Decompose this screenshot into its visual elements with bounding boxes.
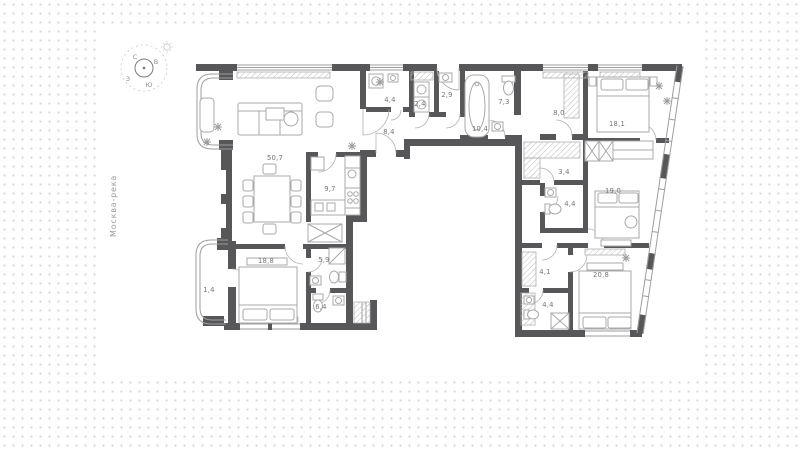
window-living-top <box>237 64 332 71</box>
window-bedroom1-top <box>598 64 642 71</box>
armchair-1 <box>316 86 333 101</box>
compass-north-label: С <box>133 53 138 61</box>
bed-bedroom4 <box>239 258 297 323</box>
side-table <box>266 108 284 120</box>
wardrobe-hatch-2 <box>524 158 540 178</box>
wardrobe-hatch-1 <box>524 142 580 158</box>
room-area-label: 8,0 <box>553 109 564 117</box>
bed-bedroom2 <box>595 191 639 246</box>
armchair-bedroom2 <box>625 216 637 228</box>
toilet-44b <box>524 310 539 319</box>
sink-64 <box>333 296 344 305</box>
shower-59 <box>329 248 345 264</box>
room-area-label: 4,4 <box>564 200 575 208</box>
room-area-label: 4,4 <box>542 301 553 309</box>
closet-x-bath3 <box>551 313 569 329</box>
room-area-label: 10,4 <box>472 125 488 133</box>
room-area-label: 19,0 <box>605 187 621 195</box>
wardrobe-hall <box>564 74 579 118</box>
plant-icon <box>348 142 356 150</box>
compass-center-dot <box>143 67 146 70</box>
compass-east-label: В <box>154 58 158 66</box>
room-area-label: 2,9 <box>441 91 452 99</box>
window-bedroom3-bottom <box>585 330 630 337</box>
room-area-label: 4,4 <box>384 96 395 104</box>
room-area-label: 20,8 <box>593 271 609 279</box>
plant-icon <box>655 82 663 90</box>
fridge <box>311 157 324 170</box>
toilet-44m <box>545 204 561 214</box>
compass-south-label: Ю <box>145 81 152 89</box>
closet-x-hall <box>308 224 342 242</box>
room-area-label: 50,7 <box>267 154 283 162</box>
room-area-label: 4,1 <box>539 268 550 276</box>
sink-44m <box>545 188 556 197</box>
window-laundry-top <box>370 64 403 71</box>
coffee-table <box>284 112 298 126</box>
room-area-label: 6,4 <box>315 303 326 311</box>
room-area-label: 9,7 <box>324 185 335 193</box>
room-area-label: 5,9 <box>318 256 329 264</box>
sink-44b <box>524 296 534 304</box>
plant-icon <box>203 138 211 146</box>
room-area-label: 7,3 <box>498 98 509 106</box>
room-area-label: 18,8 <box>258 257 274 265</box>
compass-west-label: З <box>126 75 130 83</box>
room-area-label: 2,4 <box>414 100 425 108</box>
floorplan-svg: 50,7 9,7 4,4 2,4 2,9 7,3 8,0 8,4 10,4 18… <box>0 0 800 449</box>
room-area-label: 8,4 <box>383 128 394 136</box>
toilet-main <box>502 76 515 95</box>
room-area-label: 3,4 <box>558 168 569 176</box>
toilet-59 <box>330 271 347 283</box>
plant-icon <box>376 78 384 86</box>
plant-icon <box>663 97 671 105</box>
floorplan-canvas: 50,7 9,7 4,4 2,4 2,9 7,3 8,0 8,4 10,4 18… <box>0 0 800 449</box>
wardrobe-41 <box>522 252 536 286</box>
sink-main <box>492 122 503 131</box>
bay-chaise <box>200 98 214 132</box>
sink-59 <box>310 276 321 285</box>
armchair-2 <box>316 112 333 127</box>
plant-icon <box>622 254 630 262</box>
room-area-label: 18,1 <box>609 120 625 128</box>
plant-icon <box>214 123 222 131</box>
room-area-label: 1,4 <box>203 286 214 294</box>
river-label: Москва-река <box>109 175 118 237</box>
wardrobe-bedroom1 <box>613 141 653 159</box>
wardrobe-x-bedroom2 <box>585 141 613 161</box>
sink-wc <box>439 73 452 82</box>
window-hall-top <box>543 64 588 71</box>
